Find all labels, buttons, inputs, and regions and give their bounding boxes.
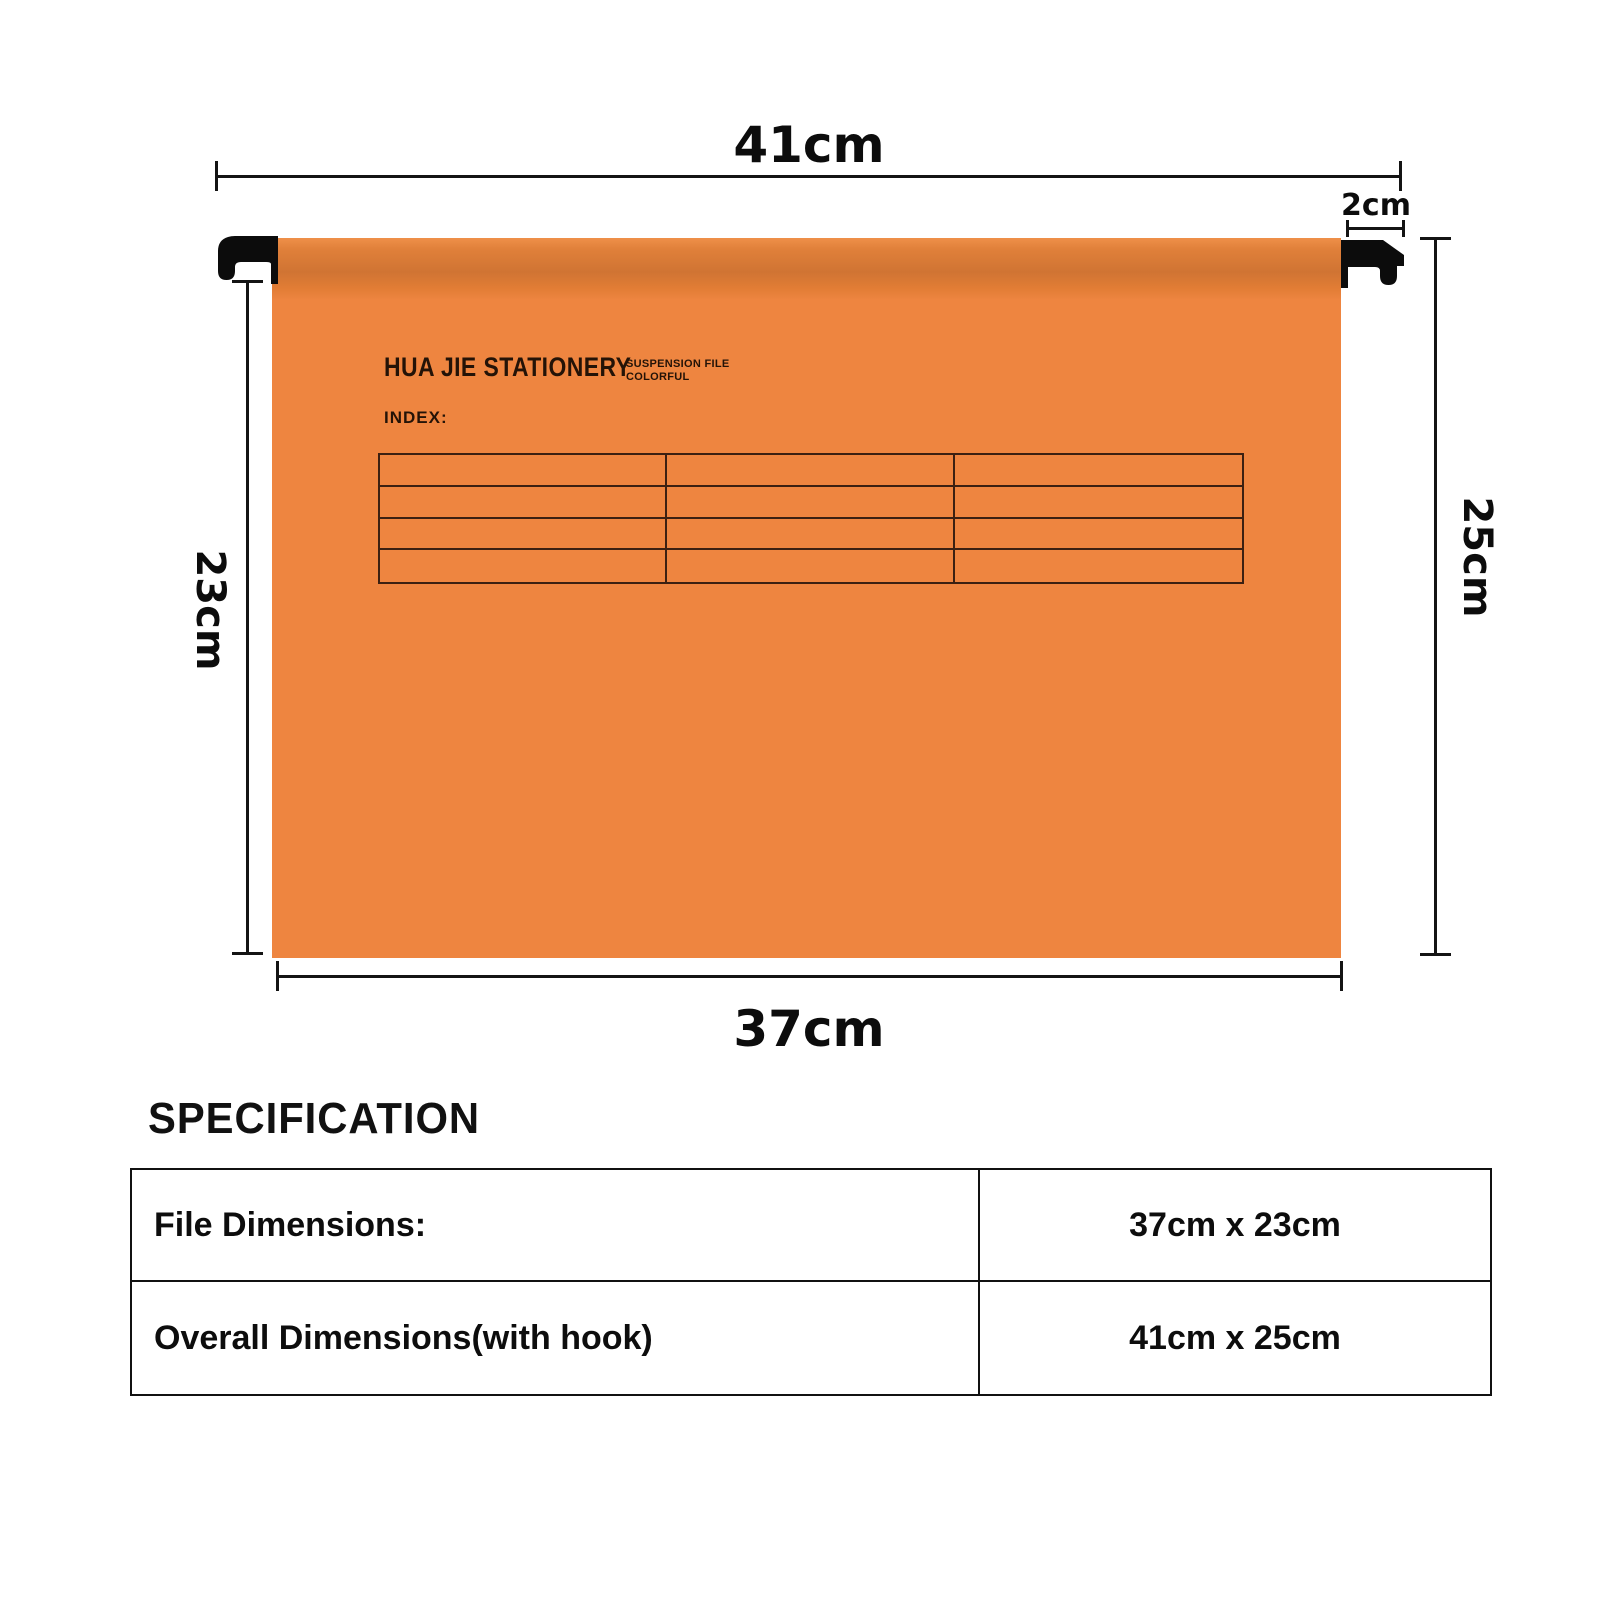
dim-tick — [1346, 220, 1349, 237]
index-grid-cell — [955, 519, 1242, 551]
index-grid-cell — [955, 455, 1242, 487]
brand-text: HUA JIE STATIONERY — [384, 352, 631, 383]
index-grid-cell — [667, 487, 954, 519]
dim-label-hook-width: 2cm — [1330, 188, 1422, 223]
dim-line-top-width — [216, 175, 1402, 178]
dim-tick — [1420, 953, 1451, 956]
dim-tick — [1402, 220, 1405, 237]
index-grid — [378, 453, 1244, 584]
folder-top-rail — [272, 238, 1341, 300]
index-grid-cell — [955, 487, 1242, 519]
brand-subtext: SUSPENSION FILE COLORFUL — [626, 358, 730, 384]
dim-label-right-height: 25cm — [1454, 496, 1500, 617]
dim-tick — [1420, 237, 1451, 240]
index-grid-cell — [667, 519, 954, 551]
suspension-file-folder — [272, 238, 1341, 958]
index-grid-cell — [955, 550, 1242, 582]
index-label: INDEX: — [384, 408, 448, 428]
dim-label-bottom-width: 37cm — [216, 1000, 1402, 1058]
left-hook — [214, 236, 278, 284]
index-grid-cell — [667, 550, 954, 582]
dim-tick — [1340, 961, 1343, 991]
dim-line-right-height — [1434, 239, 1437, 956]
index-grid-cell — [380, 550, 667, 582]
dim-tick — [1399, 161, 1402, 191]
dim-tick — [215, 161, 218, 191]
dim-label-top-width: 41cm — [216, 116, 1402, 174]
index-grid-cell — [380, 519, 667, 551]
specification-table: File Dimensions: 37cm x 23cm Overall Dim… — [130, 1168, 1492, 1396]
dim-line-bottom-width — [277, 975, 1343, 978]
spec-row-value: 41cm x 25cm — [980, 1282, 1490, 1394]
brand-subtext-line1: SUSPENSION FILE — [626, 358, 730, 371]
spec-row-label: File Dimensions: — [132, 1170, 980, 1282]
dim-label-left-height: 23cm — [187, 549, 233, 670]
brand-subtext-line2: COLORFUL — [626, 371, 730, 384]
dim-tick — [276, 961, 279, 991]
index-grid-cell — [667, 455, 954, 487]
dim-tick — [232, 280, 263, 283]
product-diagram-canvas: 41cm 2cm HUA JIE STATIONERY SUSPENSION F… — [0, 0, 1600, 1600]
spec-row-value: 37cm x 23cm — [980, 1170, 1490, 1282]
spec-row-label: Overall Dimensions(with hook) — [132, 1282, 980, 1394]
right-hook — [1341, 240, 1404, 288]
dim-tick — [232, 952, 263, 955]
dim-line-left-height — [246, 282, 249, 955]
dim-line-hook-width — [1347, 227, 1405, 230]
specification-heading: SPECIFICATION — [148, 1094, 480, 1144]
index-grid-cell — [380, 487, 667, 519]
index-grid-cell — [380, 455, 667, 487]
